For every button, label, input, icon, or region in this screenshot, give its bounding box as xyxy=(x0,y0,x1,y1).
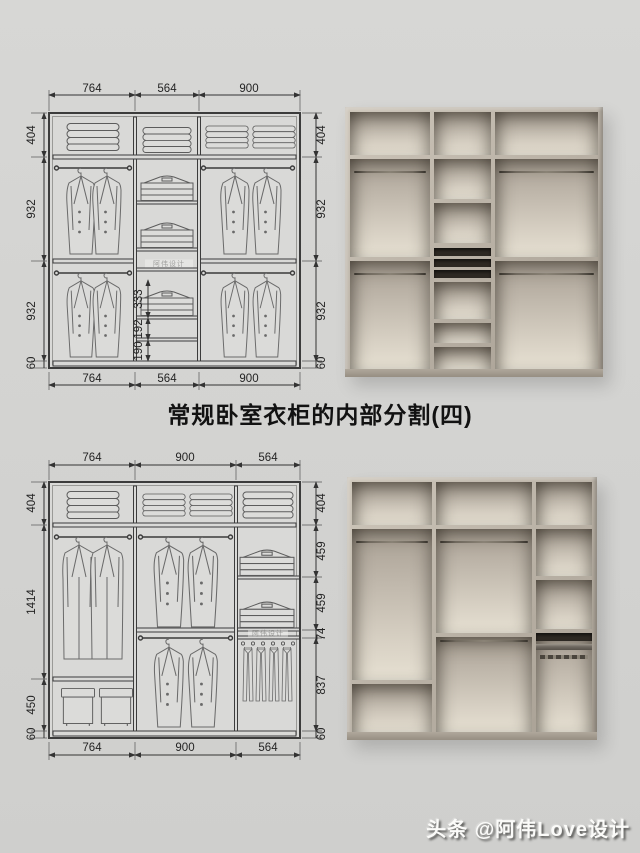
svg-text:404: 404 xyxy=(316,493,328,513)
svg-text:564: 564 xyxy=(258,452,278,464)
render-compartment xyxy=(352,529,432,680)
svg-text:阿伟设计: 阿伟设计 xyxy=(252,629,284,638)
render-compartment xyxy=(495,159,598,257)
folded-clothes-icon xyxy=(67,492,119,519)
render-compartment xyxy=(352,684,432,732)
shelf xyxy=(137,268,198,271)
drawer-slot xyxy=(434,248,491,256)
drawer-slot xyxy=(434,270,491,278)
folded-clothes-icon xyxy=(143,494,185,516)
drawer-slot xyxy=(434,259,491,267)
long-coat-icon xyxy=(63,537,95,659)
drawer-front xyxy=(536,644,592,650)
clothes-rod xyxy=(354,171,426,173)
wardrobe-render-bottom xyxy=(347,477,597,740)
render-compartment xyxy=(495,112,598,155)
shelf xyxy=(238,576,300,579)
svg-text:60: 60 xyxy=(26,728,38,741)
render-base xyxy=(347,732,597,740)
folded-clothes-icon xyxy=(253,126,295,148)
svg-text:450: 450 xyxy=(26,695,38,714)
drawer-box-icon xyxy=(61,689,94,726)
render-compartment xyxy=(436,482,532,525)
embedded-watermark: 阿伟设计 xyxy=(145,259,193,268)
clothes-rod xyxy=(499,171,594,173)
render-compartment xyxy=(536,580,592,629)
svg-text:60: 60 xyxy=(26,357,38,370)
render-base xyxy=(345,369,603,377)
svg-text:564: 564 xyxy=(157,83,177,95)
shelf xyxy=(201,259,297,263)
svg-text:837: 837 xyxy=(316,675,328,694)
render-compartment xyxy=(434,112,491,155)
svg-text:900: 900 xyxy=(175,742,194,754)
clothes-rod xyxy=(356,541,428,543)
svg-text:333: 333 xyxy=(133,289,145,308)
trouser-rack xyxy=(540,655,588,659)
svg-text:74: 74 xyxy=(316,627,328,640)
folded-clothes-icon xyxy=(206,126,248,148)
shelf xyxy=(137,201,198,204)
clothes-rod xyxy=(440,541,528,543)
svg-text:60: 60 xyxy=(316,728,328,741)
technical-drawing-bottom: 阿伟设计 xyxy=(26,445,336,775)
render-compartment xyxy=(434,159,491,199)
svg-text:192: 192 xyxy=(133,319,145,338)
svg-text:459: 459 xyxy=(316,593,328,612)
svg-text:900: 900 xyxy=(175,452,194,464)
render-compartment xyxy=(350,112,430,155)
svg-text:764: 764 xyxy=(82,373,102,385)
shelf xyxy=(137,338,198,341)
shelf xyxy=(53,523,296,527)
shelf xyxy=(137,316,198,319)
render-compartment xyxy=(350,261,430,369)
clothes-rod xyxy=(440,640,528,642)
partition xyxy=(198,117,201,361)
svg-text:1414: 1414 xyxy=(26,589,38,615)
technical-drawing-top: 阿伟设计 xyxy=(26,78,336,398)
svg-text:564: 564 xyxy=(258,742,278,754)
svg-text:932: 932 xyxy=(316,301,328,320)
render-compartment xyxy=(536,482,592,525)
page-title: 常规卧室衣柜的内部分割(四) xyxy=(0,396,640,430)
clothes-rod xyxy=(499,273,594,275)
drawer-slot xyxy=(536,633,592,641)
svg-text:764: 764 xyxy=(82,742,102,754)
render-compartment xyxy=(536,529,592,576)
folded-clothes-icon xyxy=(143,128,191,153)
svg-text:900: 900 xyxy=(239,373,258,385)
svg-text:404: 404 xyxy=(26,493,38,513)
shelf xyxy=(53,155,296,159)
render-compartment xyxy=(434,282,491,319)
base-plinth xyxy=(53,731,296,736)
svg-text:190: 190 xyxy=(133,341,145,360)
credit-watermark: 头条 @阿伟Love设计 xyxy=(426,813,630,842)
base-plinth xyxy=(53,361,296,366)
svg-text:404: 404 xyxy=(316,125,328,145)
render-compartment xyxy=(495,261,598,369)
render-compartment xyxy=(436,529,532,633)
render-compartment xyxy=(350,159,430,257)
svg-text:阿伟设计: 阿伟设计 xyxy=(153,259,185,268)
render-compartment xyxy=(434,347,491,369)
svg-text:900: 900 xyxy=(239,83,258,95)
svg-text:932: 932 xyxy=(316,199,328,218)
render-compartment xyxy=(436,637,532,732)
folded-clothes-icon xyxy=(67,124,119,151)
embedded-watermark: 阿伟设计 xyxy=(248,629,288,638)
shelf xyxy=(53,259,134,263)
svg-text:404: 404 xyxy=(26,125,38,145)
svg-text:932: 932 xyxy=(26,301,38,320)
long-coat-icon xyxy=(91,537,123,659)
folded-clothes-icon xyxy=(243,492,293,518)
svg-text:764: 764 xyxy=(82,452,102,464)
svg-text:60: 60 xyxy=(316,357,328,370)
poster-canvas: 阿伟设计 xyxy=(0,0,640,853)
folded-clothes-icon xyxy=(190,494,232,516)
shelf xyxy=(53,677,134,681)
wardrobe-render-top xyxy=(345,107,603,377)
render-compartment xyxy=(434,323,491,343)
shelf xyxy=(137,248,198,251)
svg-text:932: 932 xyxy=(26,199,38,218)
svg-text:764: 764 xyxy=(82,83,102,95)
render-compartment xyxy=(434,203,491,243)
shelf xyxy=(137,628,235,632)
svg-text:459: 459 xyxy=(316,541,328,560)
svg-text:564: 564 xyxy=(157,373,177,385)
render-compartment xyxy=(352,482,432,525)
clothes-rod xyxy=(354,273,426,275)
drawer-box-icon xyxy=(99,689,132,726)
